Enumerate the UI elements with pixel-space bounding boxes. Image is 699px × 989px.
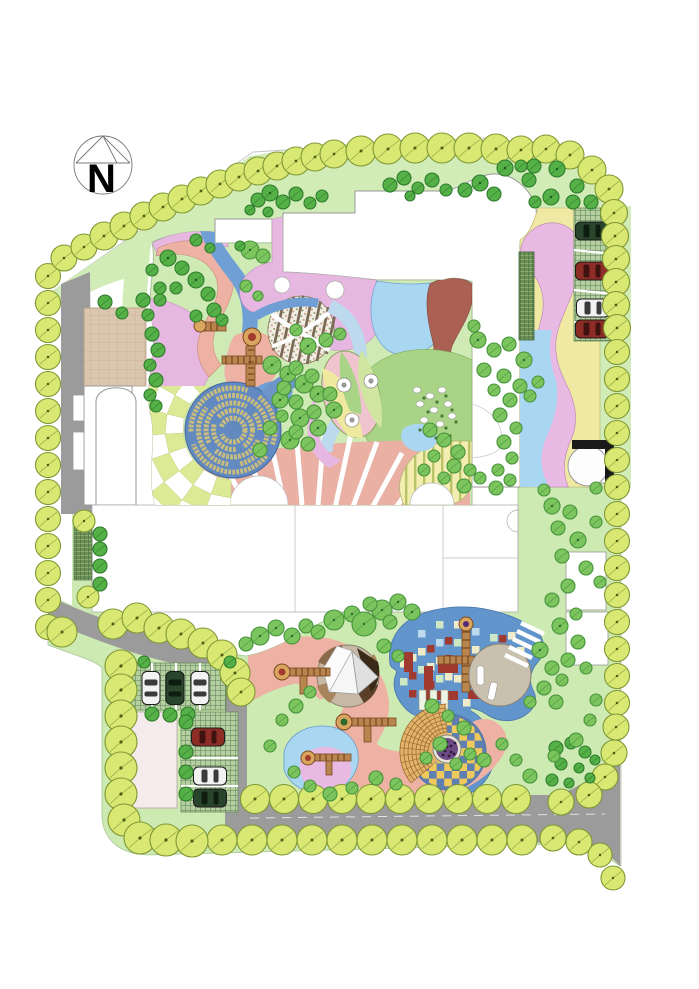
svg-text:N: N [87,157,116,201]
